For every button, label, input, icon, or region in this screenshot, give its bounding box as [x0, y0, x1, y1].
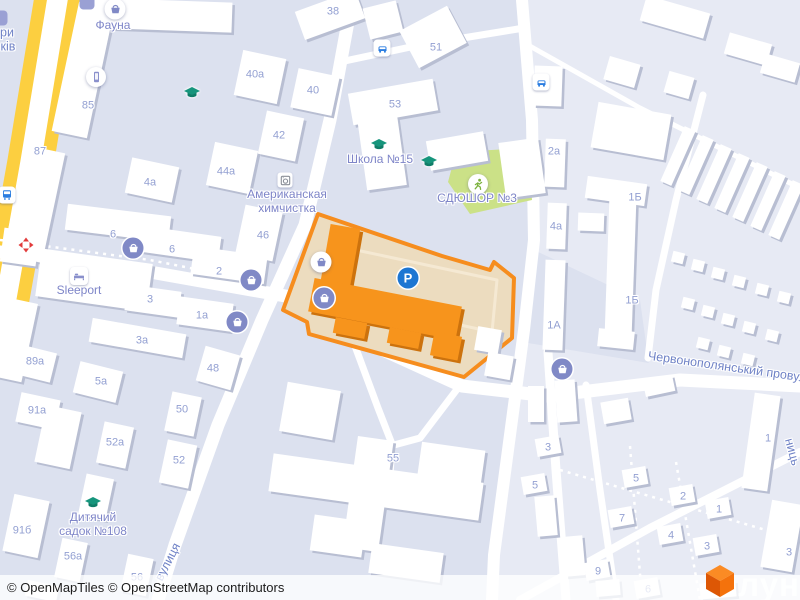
building	[546, 203, 567, 250]
building	[124, 284, 181, 317]
building	[534, 495, 557, 537]
building	[605, 198, 637, 337]
building	[357, 114, 407, 191]
building	[295, 0, 365, 40]
building	[415, 442, 486, 504]
building	[533, 66, 562, 107]
building	[89, 318, 187, 358]
attribution-text[interactable]: © OpenMapTiles © OpenStreetMap contribut…	[7, 580, 284, 595]
building	[290, 68, 339, 116]
building	[164, 391, 202, 436]
building	[542, 260, 565, 351]
lun-logo[interactable]: лун	[705, 564, 800, 600]
building	[279, 382, 341, 441]
attribution-bar: © OpenMapTiles © OpenStreetMap contribut…	[0, 575, 800, 600]
building	[96, 421, 134, 468]
road	[394, 388, 458, 445]
map-tiles	[0, 0, 800, 600]
building	[528, 386, 544, 422]
building	[0, 228, 40, 267]
building	[82, 0, 233, 33]
lun-logo-cube-icon	[705, 564, 735, 598]
building	[474, 326, 502, 354]
building	[125, 157, 179, 202]
building	[234, 50, 287, 104]
map-canvas[interactable]: P риківФауна38518540a4042875344a4aШкола …	[0, 0, 800, 600]
lun-logo-text: лун	[738, 570, 800, 600]
building	[399, 6, 466, 68]
building	[73, 361, 123, 403]
building	[2, 494, 49, 558]
building	[310, 515, 367, 558]
building	[258, 111, 304, 162]
building	[176, 296, 233, 331]
building	[544, 139, 566, 188]
building	[498, 137, 545, 198]
building	[484, 352, 514, 380]
building	[363, 0, 404, 39]
building	[555, 379, 578, 422]
building	[578, 213, 605, 232]
building	[597, 328, 635, 350]
building	[562, 535, 585, 577]
building	[78, 474, 114, 521]
building	[206, 142, 258, 194]
